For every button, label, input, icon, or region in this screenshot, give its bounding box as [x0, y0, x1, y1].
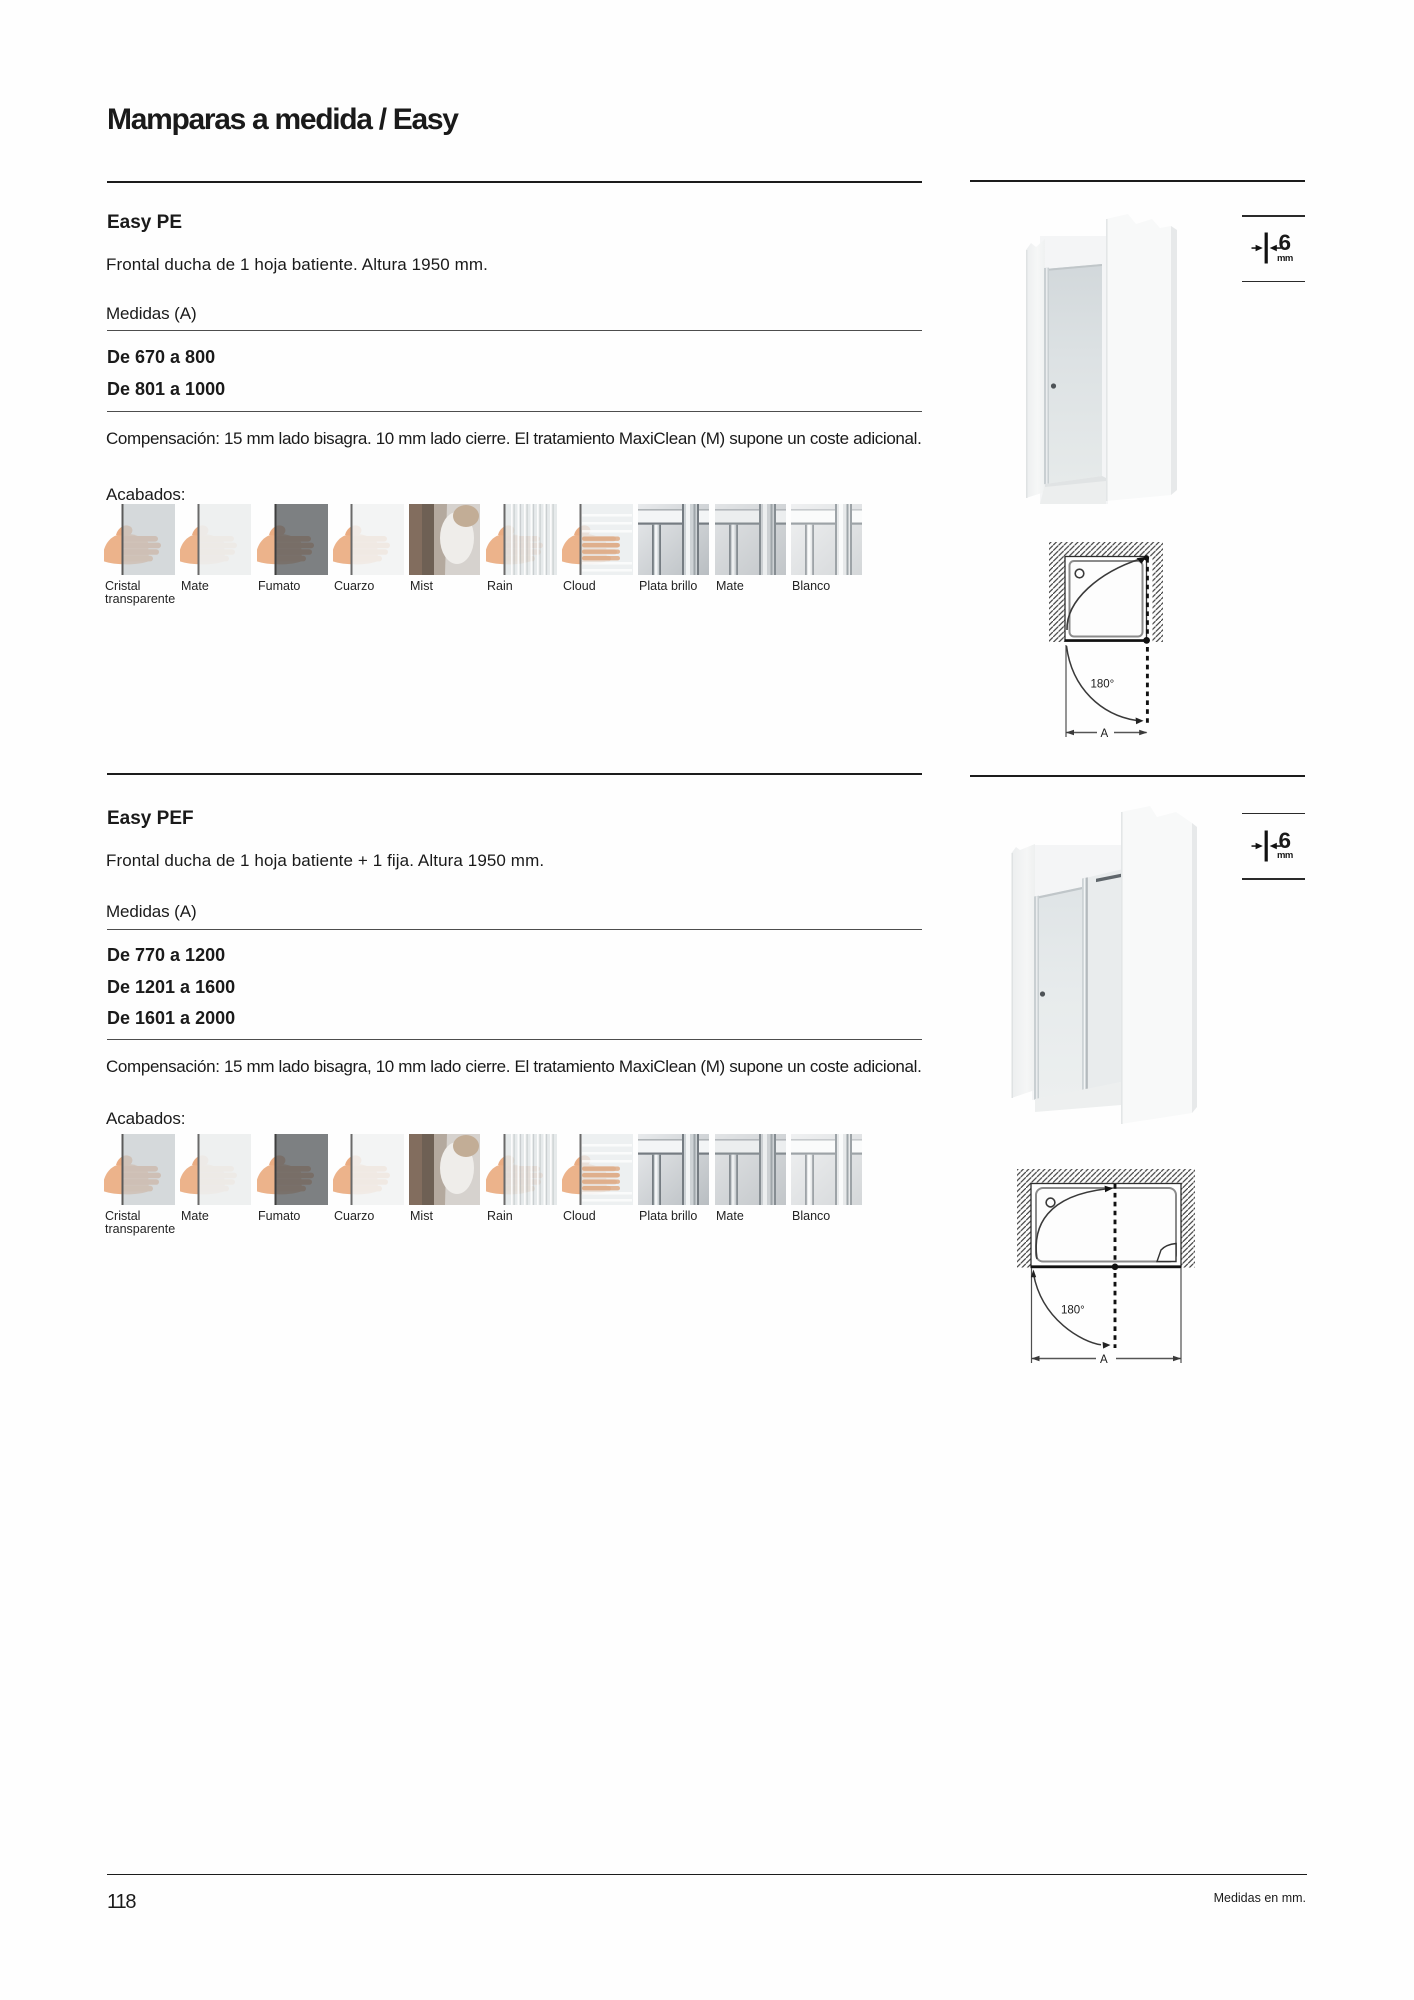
svg-text:180°: 180° — [1061, 1305, 1085, 1317]
svg-text:A: A — [1101, 728, 1109, 740]
svg-text:180°: 180° — [1091, 679, 1115, 691]
svg-text:A: A — [1100, 1354, 1108, 1366]
